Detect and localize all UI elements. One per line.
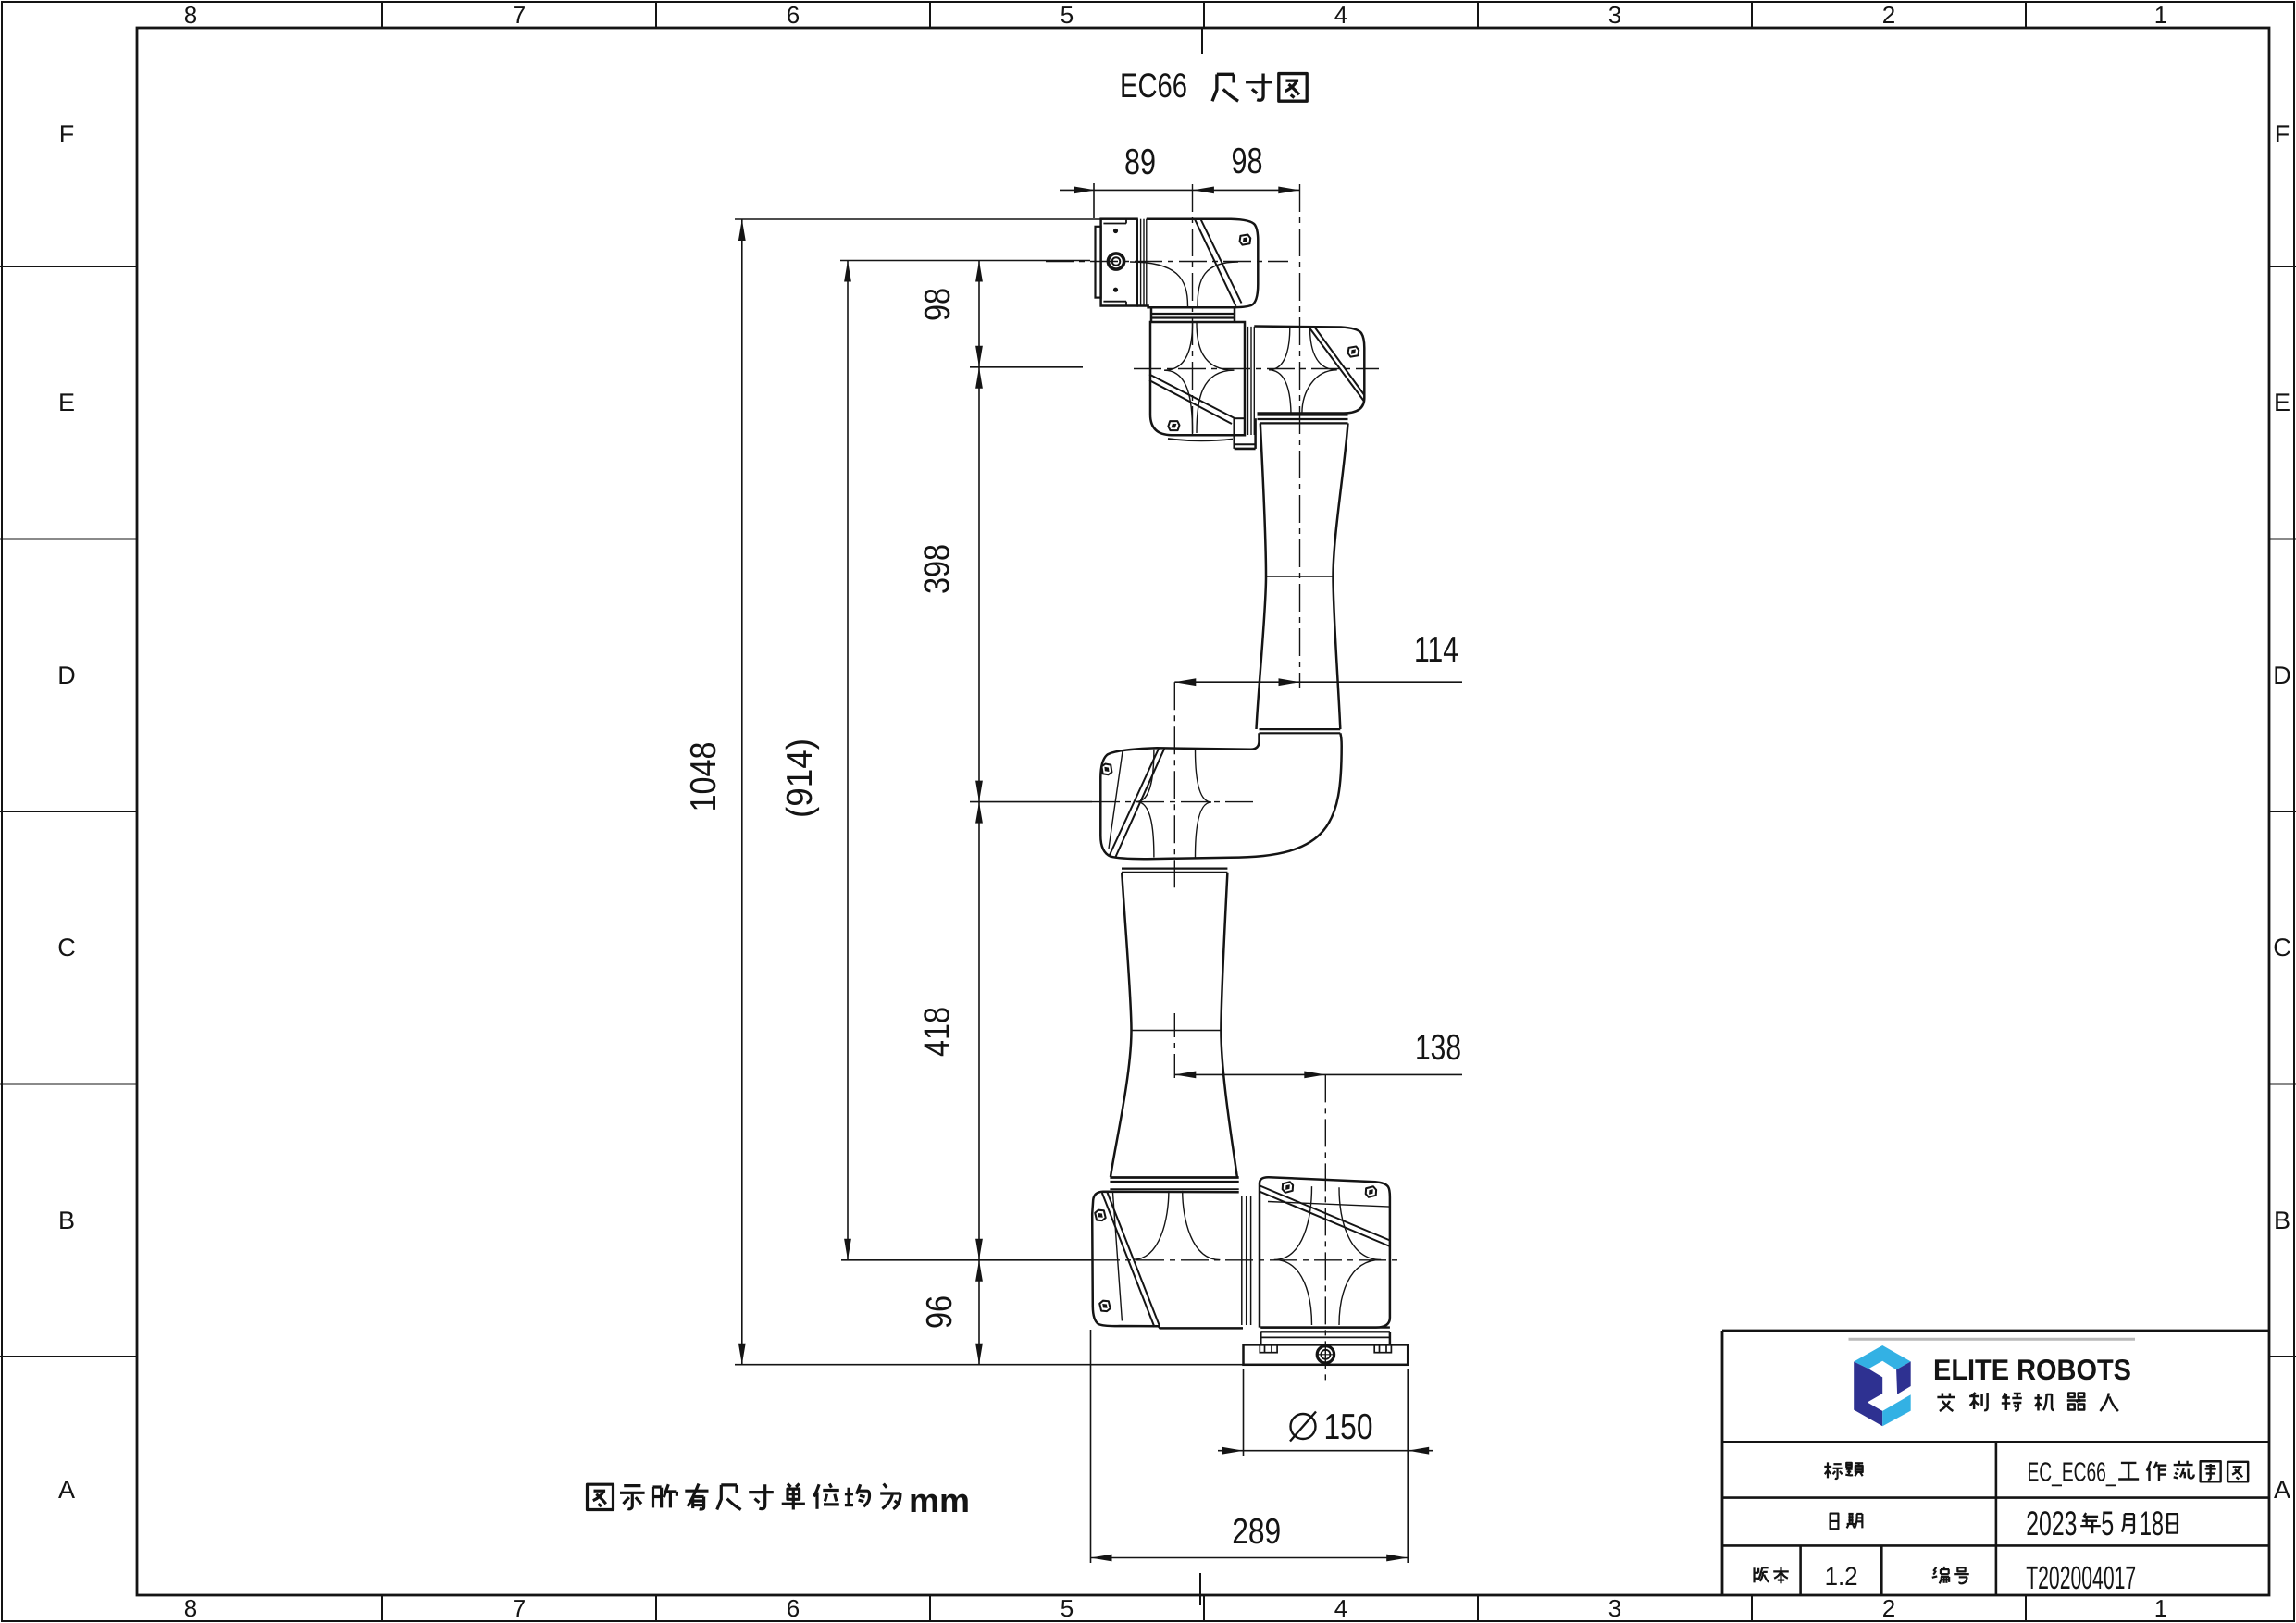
- svg-text:2: 2: [1882, 1, 1895, 29]
- svg-text:mm: mm: [909, 1481, 970, 1519]
- svg-text:2023: 2023: [2026, 1505, 2077, 1542]
- svg-text:C: C: [57, 934, 76, 961]
- svg-text:18: 18: [2140, 1505, 2164, 1542]
- svg-text:4: 4: [1334, 1594, 1347, 1622]
- svg-text:89: 89: [1124, 142, 1156, 182]
- svg-text:289: 289: [1232, 1512, 1281, 1552]
- svg-text:114: 114: [1414, 630, 1458, 670]
- svg-text:398: 398: [917, 544, 957, 594]
- svg-text:C: C: [2273, 934, 2291, 961]
- svg-text:150: 150: [1324, 1407, 1373, 1447]
- svg-text:5: 5: [2101, 1505, 2114, 1542]
- svg-text:(914): (914): [780, 738, 820, 818]
- svg-text:96: 96: [920, 1295, 960, 1329]
- svg-text:6: 6: [787, 1594, 800, 1622]
- svg-text:D: D: [57, 662, 76, 689]
- svg-text:A: A: [2274, 1476, 2290, 1504]
- svg-text:EC_EC66_: EC_EC66_: [2028, 1458, 2117, 1488]
- svg-text:E: E: [58, 389, 75, 416]
- svg-text:T202004017: T202004017: [2026, 1560, 2136, 1596]
- svg-text:D: D: [2273, 662, 2291, 689]
- svg-text:5: 5: [1061, 1594, 1074, 1622]
- svg-text:7: 7: [513, 1, 526, 29]
- svg-text:B: B: [58, 1207, 75, 1234]
- svg-text:EC66: EC66: [1120, 67, 1187, 105]
- svg-text:E: E: [2274, 389, 2290, 416]
- svg-text:3: 3: [1608, 1594, 1621, 1622]
- svg-text:4: 4: [1334, 1, 1347, 29]
- svg-text:F: F: [2275, 120, 2290, 148]
- svg-text:F: F: [59, 120, 75, 148]
- svg-text:1: 1: [2154, 1594, 2167, 1622]
- svg-text:3: 3: [1608, 1, 1621, 29]
- svg-text:7: 7: [513, 1594, 526, 1622]
- svg-text:5: 5: [1061, 1, 1074, 29]
- svg-text:138: 138: [1415, 1028, 1461, 1068]
- svg-text:418: 418: [917, 1007, 957, 1057]
- svg-text:98: 98: [1232, 142, 1263, 181]
- svg-text:B: B: [2274, 1207, 2290, 1234]
- svg-text:8: 8: [184, 1594, 197, 1622]
- svg-text:98: 98: [918, 288, 958, 321]
- svg-text:2: 2: [1882, 1594, 1895, 1622]
- svg-text:1.2: 1.2: [1825, 1562, 1858, 1591]
- svg-text:8: 8: [184, 1, 197, 29]
- svg-text:6: 6: [787, 1, 800, 29]
- svg-text:ELITE ROBOTS: ELITE ROBOTS: [1933, 1353, 2131, 1386]
- svg-text:1: 1: [2154, 1, 2167, 29]
- svg-text:1048: 1048: [684, 742, 724, 812]
- svg-text:A: A: [58, 1476, 75, 1504]
